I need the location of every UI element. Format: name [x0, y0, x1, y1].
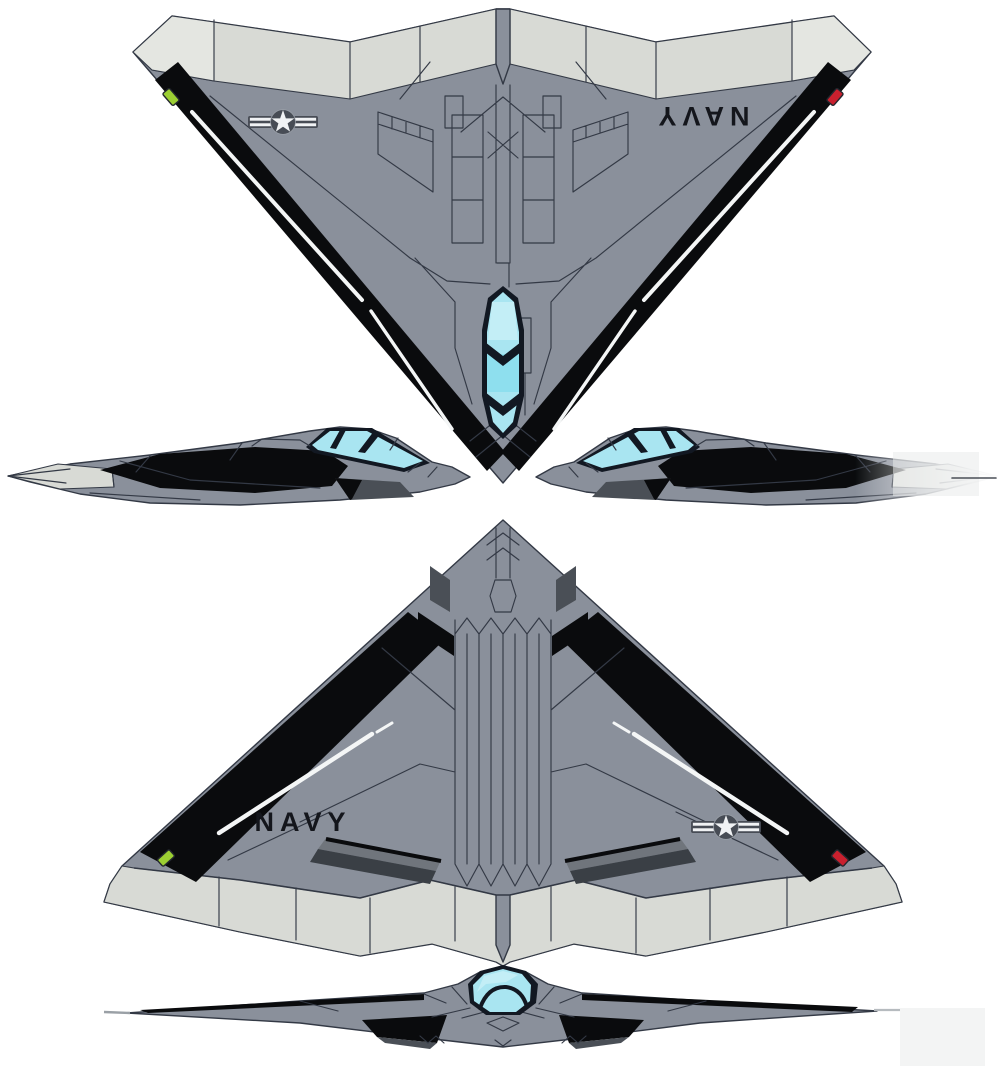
artifact-smudge — [900, 1008, 985, 1066]
artifact-smudge — [893, 452, 979, 496]
top-view: NAVY — [133, 9, 871, 483]
navy-marking-bottom-view: NAVY — [254, 807, 351, 837]
front-view — [104, 965, 985, 1066]
top-view-canopy — [482, 286, 524, 439]
navy-marking-top-view: NAVY — [652, 101, 749, 131]
bottom-view: NAVY — [104, 520, 902, 966]
side-view-left — [8, 427, 470, 505]
wingtip-needle-left — [104, 1012, 130, 1013]
illustration-canvas: NAVY — [0, 0, 998, 1080]
side-view-right — [536, 418, 998, 518]
aircraft-five-view-illustration: NAVY — [0, 0, 998, 1080]
